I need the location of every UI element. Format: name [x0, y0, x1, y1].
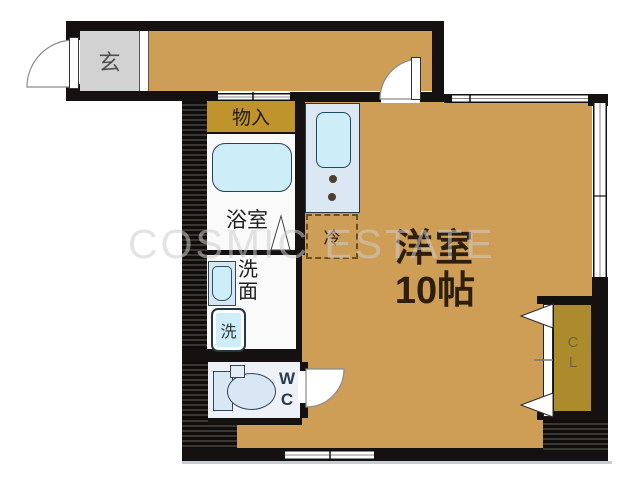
washroom-label: 洗面: [236, 258, 260, 304]
entrance-label: 玄: [80, 31, 139, 91]
main-room-size: 10帖: [355, 270, 515, 312]
closet-label: CL: [562, 326, 584, 380]
entrance-door-leaf-icon: [70, 38, 79, 89]
bathroom-label: 浴室: [207, 200, 287, 238]
hall-door-leaf-icon: [412, 58, 421, 100]
closet-door-arrow-icon: [521, 304, 553, 328]
wc-door-swing-icon: [306, 369, 344, 407]
main-room-label: 洋室 10帖: [355, 228, 515, 312]
entrance-door-swing-icon: [27, 40, 74, 87]
floor-plan: 物入 浴室 冷 洗面 洗 WC CL 玄 洋室 10帖: [0, 0, 640, 480]
closet-door-arrow-icon: [521, 393, 553, 417]
main-room-name: 洋室: [355, 228, 515, 270]
wc-label: WC: [278, 368, 296, 410]
